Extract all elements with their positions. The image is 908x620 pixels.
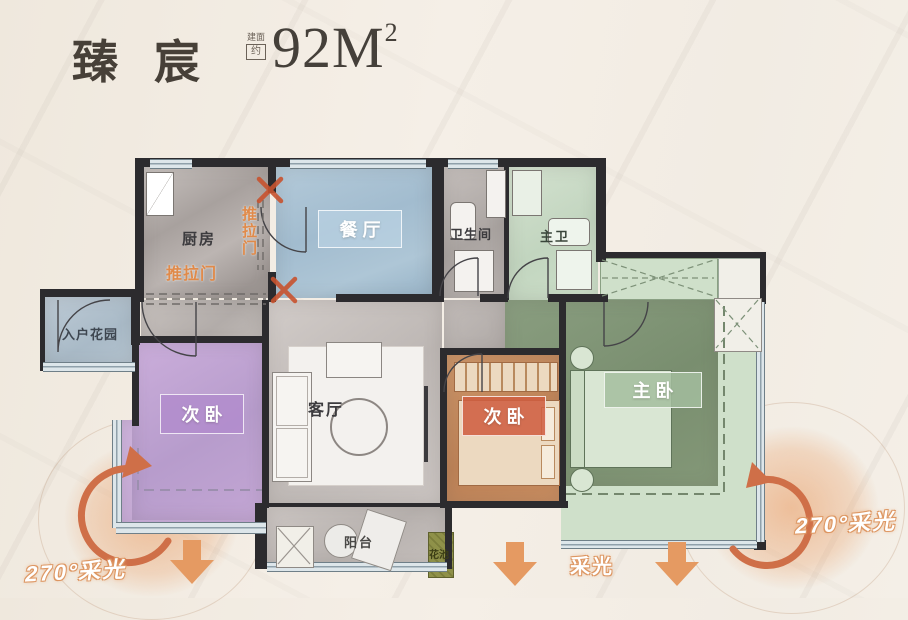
window-masterbay-bottom bbox=[561, 540, 757, 549]
label-entry-garden: 入户花园 bbox=[62, 324, 118, 343]
label-flower-bed: 花池 bbox=[429, 546, 449, 561]
wall-dining-bath bbox=[432, 158, 444, 300]
wall-living-west bbox=[262, 300, 269, 508]
wall-kitchen-left bbox=[135, 158, 144, 302]
wall-kitchen-dining-bottom bbox=[268, 272, 276, 302]
label-dining: 餐厅 bbox=[318, 210, 402, 248]
window-bedroomwest-bottom bbox=[116, 522, 266, 534]
label-bedroom-west-text: 次卧 bbox=[177, 401, 228, 427]
wall-garden-left bbox=[40, 289, 45, 371]
area-value: 92M2 bbox=[272, 14, 399, 81]
label-dining-text: 餐厅 bbox=[335, 216, 386, 242]
mbath-sink bbox=[556, 250, 592, 290]
side-table bbox=[326, 342, 382, 378]
wall-mbath-south bbox=[548, 294, 608, 302]
label-master-bath: 主卫 bbox=[540, 226, 570, 245]
window-dining-top bbox=[290, 159, 426, 169]
window-garden-bottom bbox=[43, 362, 135, 372]
label-sliding-door-side: 推拉门 bbox=[238, 206, 259, 257]
area-note-line2: 约 bbox=[246, 44, 266, 60]
wall-mbath-right bbox=[596, 158, 606, 262]
label-master-bedroom-text: 主卧 bbox=[628, 377, 679, 403]
tv-unit bbox=[424, 386, 428, 462]
label-sliding-door-bottom: 推拉门 bbox=[166, 260, 217, 284]
wall-bedroommid-left bbox=[440, 348, 447, 508]
label-bathroom: 卫生间 bbox=[450, 224, 492, 243]
area-note: 建面 约 bbox=[246, 32, 266, 60]
nightstand-bottom bbox=[570, 468, 594, 492]
label-daylight-left: 270°采光 bbox=[23, 551, 131, 588]
area-note-line1: 建面 bbox=[246, 32, 266, 42]
wall-bedroommid-top bbox=[440, 348, 566, 355]
label-living: 客厅 bbox=[308, 396, 344, 420]
label-daylight-right: 270°采光 bbox=[793, 503, 901, 540]
master-bay-bottom bbox=[561, 486, 760, 542]
window-bath-top bbox=[448, 159, 498, 169]
wall-garden-top bbox=[40, 289, 140, 297]
wall-dining-south bbox=[336, 294, 444, 302]
wardrobe-strip bbox=[600, 258, 718, 300]
label-balcony: 阳台 bbox=[344, 532, 374, 551]
bath-shower bbox=[486, 170, 506, 218]
wall-bedroommid-bottom bbox=[440, 501, 568, 508]
window-bedroomwest-left bbox=[112, 420, 122, 528]
sofa bbox=[272, 372, 312, 482]
nightstand-top bbox=[570, 346, 594, 370]
wall-outer-right-top bbox=[760, 252, 766, 304]
area-superscript: 2 bbox=[385, 18, 399, 47]
wall-balcony-left bbox=[255, 503, 267, 569]
bath-sink bbox=[454, 250, 494, 292]
label-bedroom-middle: 次卧 bbox=[462, 396, 546, 436]
wall-bedroommid-master bbox=[559, 300, 566, 508]
plan-title: 臻宸 bbox=[72, 26, 236, 92]
window-kitchen-top bbox=[150, 159, 192, 169]
hallway-east bbox=[444, 300, 506, 354]
master-cabinet bbox=[714, 298, 762, 352]
wall-bath-south bbox=[480, 294, 508, 302]
label-bedroom-west: 次卧 bbox=[160, 394, 244, 434]
wall-balcony-top bbox=[267, 503, 445, 507]
label-daylight-center: 采光 bbox=[570, 550, 614, 579]
wall-closet-top bbox=[596, 252, 766, 258]
label-kitchen: 厨房 bbox=[182, 228, 216, 249]
label-master-bedroom: 主卧 bbox=[604, 372, 702, 408]
wall-bedroomwest-top bbox=[132, 336, 266, 343]
label-bedroom-middle-text: 次卧 bbox=[479, 403, 530, 429]
bedroommid-wardrobe bbox=[454, 362, 558, 392]
closet-door-nook bbox=[718, 258, 762, 300]
area-number: 92M bbox=[272, 15, 385, 80]
mbath-cabinet bbox=[512, 170, 542, 216]
wall-bedroomwest-left bbox=[132, 336, 139, 426]
balcony-planter bbox=[276, 526, 314, 568]
wall-kitchen-dining-top bbox=[268, 167, 276, 193]
fridge bbox=[146, 172, 174, 216]
